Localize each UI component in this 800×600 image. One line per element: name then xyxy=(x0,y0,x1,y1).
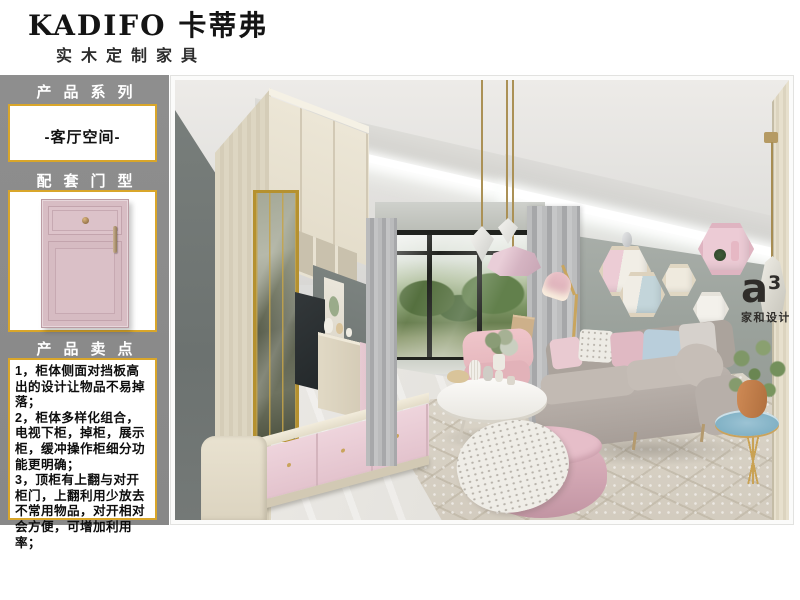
section-title-door: 配套门型 xyxy=(0,170,169,191)
door-box xyxy=(8,190,157,332)
chest-vase-3 xyxy=(346,328,352,337)
series-box: -客厅空间- xyxy=(8,104,157,162)
room-photo-frame: a3 家和设计 xyxy=(170,75,794,525)
table-basket xyxy=(447,370,469,383)
pendant-right-cord xyxy=(771,142,773,258)
series-value: -客厅空间- xyxy=(10,126,155,147)
watermark: a3 家和设计 xyxy=(741,274,789,325)
watermark-logo: a xyxy=(741,266,768,312)
watermark-name: 家和设计 xyxy=(741,309,789,325)
brand-tagline: 实木定制家具 xyxy=(56,42,206,66)
sellpoint-1: 1，柜体侧面对挡板高出的设计让物品不易掉落； xyxy=(15,364,150,411)
armchair-vase xyxy=(493,354,505,370)
door-diagram xyxy=(41,199,129,328)
door-panel xyxy=(48,241,122,321)
living-room-scene: a3 家和设计 xyxy=(175,80,789,520)
terracotta-vase xyxy=(737,380,767,418)
curtain-left xyxy=(366,218,397,466)
tv-stand-return-panel xyxy=(201,436,267,520)
sellpoints-box: 1，柜体侧面对挡板高出的设计让物品不易掉落； 2，柜体多样化组合，电视下柜，掉柜… xyxy=(8,358,157,520)
sellpoint-2: 2，柜体多样化组合，电视下柜，掉柜，展示柜，缓冲操作柜细分功能更明确； xyxy=(15,411,150,473)
glass-display-cabinet xyxy=(253,190,299,442)
door-drawer xyxy=(48,206,122,235)
mid-chest xyxy=(318,332,360,418)
brand-logo: KADIFO 卡蒂弗 xyxy=(28,4,268,44)
product-poster: KADIFO 卡蒂弗 实木定制家具 产品系列 -客厅空间- 配套门型 产品卖点 … xyxy=(0,0,800,600)
coffee-table-top xyxy=(437,378,547,420)
hex-bottle xyxy=(731,241,739,261)
sofa-pillow-dotted xyxy=(578,329,614,363)
watermark-sup: 3 xyxy=(768,272,781,294)
chest-vase-2 xyxy=(336,323,343,334)
table-vase-white xyxy=(469,360,481,380)
door-handle xyxy=(113,226,117,253)
chest-vase-1 xyxy=(324,318,333,333)
hex-succulent xyxy=(714,249,726,261)
pendant-cord-2 xyxy=(506,80,508,222)
sellpoint-3: 3，顶柜有上翻与对开柜门，上翻利用少放去不常用物品，对开相对会方便，可增加利用率… xyxy=(15,473,150,551)
table-bottle xyxy=(495,370,503,382)
door-knob xyxy=(82,217,89,224)
hex-ornament-bunny xyxy=(622,232,632,247)
drawer-knob-1 xyxy=(287,462,291,467)
section-title-sellpoints: 产品卖点 xyxy=(0,338,169,359)
side-table-base xyxy=(727,430,779,484)
table-cup xyxy=(507,376,515,385)
section-title-series: 产品系列 xyxy=(0,81,169,102)
table-vase-gray xyxy=(483,366,493,381)
sidebar: 产品系列 -客厅空间- 配套门型 产品卖点 1，柜体侧面对挡板高出的设计让物品不… xyxy=(0,75,169,525)
pendant-cord-1 xyxy=(481,80,483,228)
drawer-knob-2 xyxy=(341,448,345,453)
